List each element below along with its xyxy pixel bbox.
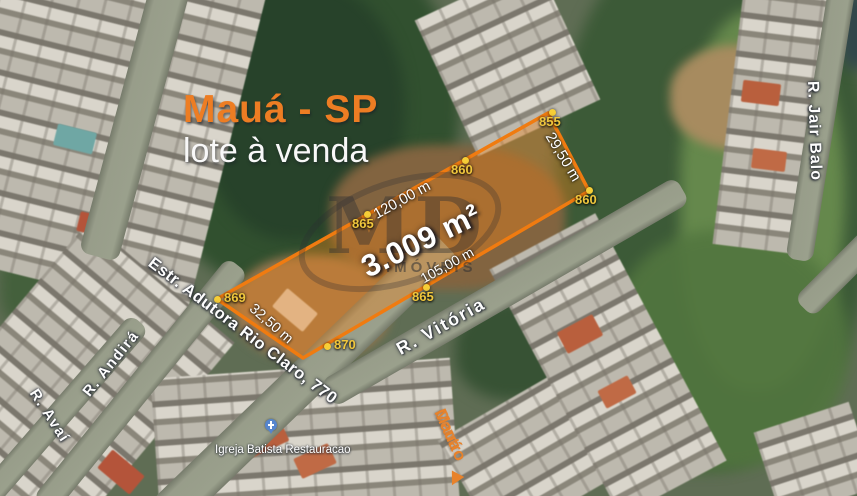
- poi-label-church: Igreja Batista Restauracao: [215, 444, 351, 456]
- elevation-label: 860: [451, 162, 473, 177]
- elevation-label: 860: [575, 192, 597, 207]
- map-canvas: MD IMÓVEIS 120,00 m 29,50 m 105,00 m 32,…: [0, 0, 857, 496]
- elevation-dot: [324, 343, 331, 350]
- page-title: Mauá - SP: [183, 88, 378, 132]
- street-label-jair-balo: R. Jair Balo: [803, 81, 824, 182]
- elevation-label: 855: [539, 114, 561, 129]
- elevation-label: 865: [412, 289, 434, 304]
- page-subtitle: lote à venda: [183, 132, 368, 171]
- elevation-label: 865: [352, 216, 374, 231]
- church-pin-icon: [265, 419, 277, 431]
- elevation-label: 870: [334, 337, 356, 352]
- church-cross-icon: [268, 424, 274, 426]
- elevation-label: 869: [224, 290, 246, 305]
